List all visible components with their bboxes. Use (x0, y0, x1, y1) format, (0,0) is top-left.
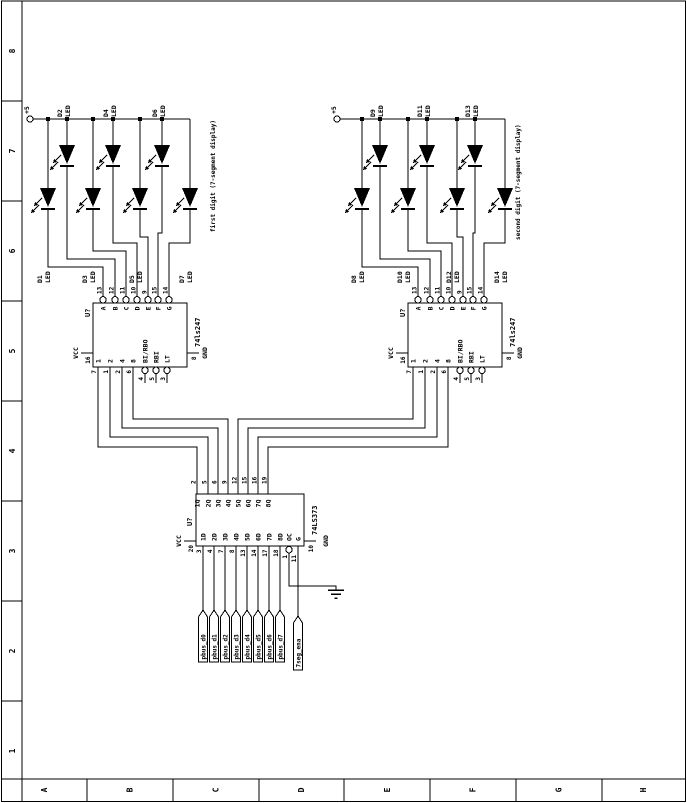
net-flag-label: pbus_d1 (211, 634, 218, 660)
pin-number: 12 (424, 286, 431, 294)
pin-name: 1Q (194, 499, 202, 507)
decoder-device-label: 74ls247 (194, 317, 202, 347)
pin-name: G (295, 537, 303, 541)
junction-dot (65, 117, 69, 121)
vcc-terminal-icon (27, 116, 33, 122)
pin-number: 6 (441, 370, 448, 374)
pin-number: 18 (273, 549, 280, 557)
pin-name: 8 (130, 359, 138, 363)
inverter-bubble (142, 367, 148, 373)
pin-number: 6 (212, 480, 219, 484)
pin-name: 8Q (265, 499, 273, 507)
pin-name: BI/RBO (457, 339, 465, 363)
latch-to-u7-wire (110, 367, 208, 494)
led-type-label: LED (64, 105, 72, 117)
pin-number: 8 (506, 356, 513, 360)
vcc-label: VCC (175, 535, 183, 547)
pin-number: 9 (457, 290, 464, 294)
net-flag-label: pbus_d5 (255, 634, 262, 660)
pin-number: 5 (202, 480, 209, 484)
latch-to-u7-wire (133, 367, 228, 494)
zone-number-label: 7 (8, 148, 17, 153)
led-refdes: D10 (396, 271, 404, 283)
gnd-label: GND (201, 347, 209, 359)
pin-name: F (470, 306, 478, 310)
pin-name: OC (286, 533, 294, 541)
pin-name: 2 (107, 359, 115, 363)
decoder-body-1 (93, 303, 187, 367)
pin-number: 5 (149, 377, 156, 381)
zone-letter-label: F (469, 787, 478, 792)
pin-name: C (438, 306, 446, 310)
inverter-bubble (145, 297, 151, 303)
schematic-page: 87654321ABCDEFGH+5+5D1LEDD2LEDD3LEDD4LED… (0, 0, 687, 803)
latch-to-u9-wire (268, 367, 448, 494)
pin-name: 6D (255, 533, 263, 541)
inverter-bubble (481, 297, 487, 303)
pin-name: LT (164, 355, 172, 363)
pin-name: 4Q (225, 499, 233, 507)
junction-dot (360, 117, 364, 121)
junction-dot (473, 117, 477, 121)
inverter-bubble (457, 367, 463, 373)
led-type-label: LED (377, 105, 385, 117)
zone-number-label: 2 (8, 648, 17, 653)
inverter-bubble (112, 297, 118, 303)
pin-name: C (123, 306, 131, 310)
pin-number: 13 (412, 286, 419, 294)
led-diode-triangle (59, 145, 75, 164)
led-cathode-wire (408, 209, 441, 296)
led-type-label: LED (110, 105, 118, 117)
pin-number: 8 (191, 356, 198, 360)
net-flag-label: pbus_d3 (233, 634, 240, 660)
pin-name: BI/RBO (142, 339, 150, 363)
led-diode-triangle (372, 145, 388, 164)
pin-number: 5 (464, 377, 471, 381)
pin-name: 5Q (235, 499, 243, 507)
display-title-2: second digit (7-segment display) (515, 124, 522, 240)
led-diode-triangle (400, 188, 416, 207)
led-refdes: D14 (493, 271, 501, 283)
pin-name: D (134, 306, 142, 310)
inverter-bubble (123, 297, 129, 303)
pin-number: 11 (291, 555, 298, 563)
led-type-label: LED (404, 271, 412, 283)
led-refdes: D7 (178, 275, 186, 283)
pin-number: 10 (308, 545, 315, 553)
pin-number: 15 (467, 286, 474, 294)
pin-number: 11 (435, 286, 442, 294)
pin-name: 2Q (205, 499, 213, 507)
led-refdes: D5 (128, 275, 136, 283)
led-refdes: D2 (56, 109, 64, 117)
inverter-bubble (286, 547, 292, 553)
led-diode-triangle (40, 188, 56, 207)
inverter-bubble (460, 297, 466, 303)
pin-number: 4 (138, 377, 145, 381)
pin-number: 7 (218, 549, 225, 553)
pin-number: 11 (120, 286, 127, 294)
pin-name: A (100, 306, 108, 310)
pin-name: RBI (153, 351, 161, 363)
latch-refdes: U? (186, 518, 194, 526)
pin-name: 2D (211, 533, 219, 541)
pin-name: E (145, 306, 153, 310)
inverter-bubble (164, 367, 170, 373)
plus5-label: +5 (23, 106, 31, 114)
led-refdes: D9 (369, 109, 377, 117)
pin-number: 14 (478, 286, 485, 294)
net-flag-label: pbus_d6 (266, 634, 273, 660)
pin-number: 9 (222, 480, 229, 484)
vcc-label: VCC (387, 347, 395, 359)
pin-name: 8D (277, 533, 285, 541)
led-diode-triangle (419, 145, 435, 164)
led-refdes: D11 (416, 105, 424, 117)
led-cathode-wire (158, 166, 162, 296)
pin-number: 4 (453, 377, 460, 381)
junction-dot (111, 117, 115, 121)
pin-name: 3D (222, 533, 230, 541)
inverter-bubble (100, 297, 106, 303)
zone-letter-label: C (212, 787, 221, 792)
inverter-bubble (479, 367, 485, 373)
zone-number-label: 4 (8, 448, 17, 453)
led-diode-triangle (182, 188, 198, 207)
decoder-refdes: U? (399, 309, 407, 317)
led-cathode-wire (93, 209, 126, 296)
pin-name: 4 (119, 359, 127, 363)
pin-number: 9 (142, 290, 149, 294)
led-refdes: D1 (36, 275, 44, 283)
pin-name: 1 (95, 359, 103, 363)
zone-letter-label: A (40, 787, 49, 792)
led-refdes: D3 (81, 275, 89, 283)
inverter-bubble (415, 297, 421, 303)
zone-letter-label: D (297, 787, 306, 792)
pin-name: 4D (233, 533, 241, 541)
latch-to-u9-wire (248, 367, 425, 494)
decoder-body-2 (408, 303, 502, 367)
junction-dot (46, 117, 50, 121)
latch-to-u7-wire (98, 367, 197, 494)
latch-to-u7-wire (122, 367, 218, 494)
inverter-bubble (449, 297, 455, 303)
inverter-bubble (134, 297, 140, 303)
gnd-label: GND (516, 347, 524, 359)
border-frame (2, 1, 686, 802)
pin-number: 19 (262, 476, 269, 484)
pin-number: 2 (191, 480, 198, 484)
led-type-label: LED (501, 271, 509, 283)
junction-dot (160, 117, 164, 121)
vcc-terminal-icon (334, 116, 340, 122)
led-refdes: D13 (464, 105, 472, 117)
pin-number: 6 (126, 370, 133, 374)
pin-number: 3 (475, 377, 482, 381)
pin-name: F (155, 306, 163, 310)
inverter-bubble (155, 297, 161, 303)
net-flag-label: pbus_d0 (200, 634, 207, 660)
pin-number: 13 (240, 549, 247, 557)
junction-dot (378, 117, 382, 121)
pin-name: 3Q (215, 499, 223, 507)
led-refdes: D4 (102, 109, 110, 117)
pin-number: 13 (97, 286, 104, 294)
latch-to-u9-wire (238, 367, 413, 494)
decoder-refdes: U? (84, 309, 92, 317)
pin-number: 15 (152, 286, 159, 294)
decoder-device-label: 74ls247 (509, 317, 517, 347)
led-type-label: LED (358, 271, 366, 283)
pin-name: G (166, 306, 174, 310)
pin-name: 4 (434, 359, 442, 363)
pin-number: 7 (406, 370, 413, 374)
junction-dot (91, 117, 95, 121)
latch-device-label: 74LS373 (311, 505, 319, 535)
junction-dot (425, 117, 429, 121)
pin-number: 1 (103, 370, 110, 374)
pin-number: 14 (163, 286, 170, 294)
pin-name: RBI (468, 351, 476, 363)
zone-number-label: 6 (8, 248, 17, 253)
display-title-1: first digit (7-segment display) (210, 120, 217, 232)
zone-letter-label: B (126, 787, 135, 792)
led-type-label: LED (424, 105, 432, 117)
net-flag-label: pbus_d2 (222, 634, 229, 660)
zone-letter-label: E (383, 787, 392, 792)
inverter-bubble (468, 367, 474, 373)
led-diode-triangle (449, 188, 465, 207)
pin-name: LT (479, 355, 487, 363)
pin-number: 3 (196, 549, 203, 553)
zone-letter-label: G (555, 787, 564, 792)
inverter-bubble (166, 297, 172, 303)
pin-name: A (415, 306, 423, 310)
pin-number: 10 (446, 286, 453, 294)
inverter-bubble (470, 297, 476, 303)
led-diode-triangle (467, 145, 483, 164)
led-diode-triangle (105, 145, 121, 164)
pin-name: 6Q (245, 499, 253, 507)
junction-dot (455, 117, 459, 121)
pin-name: 1 (410, 359, 418, 363)
pin-number: 2 (430, 370, 437, 374)
zone-letter-label: H (639, 787, 648, 792)
led-refdes: D12 (445, 271, 453, 283)
pin-number: 3 (160, 377, 167, 381)
vcc-label: VCC (72, 347, 80, 359)
latch-to-u9-wire (258, 367, 437, 494)
led-type-label: LED (186, 271, 194, 283)
led-type-label: LED (472, 105, 480, 117)
plus5-label: +5 (330, 106, 338, 114)
led-type-label: LED (136, 271, 144, 283)
pin-number: 8 (229, 549, 236, 553)
pin-number: 1 (418, 370, 425, 374)
inverter-bubble (427, 297, 433, 303)
inverter-bubble (153, 367, 159, 373)
led-refdes: D8 (350, 275, 358, 283)
led-diode-triangle (85, 188, 101, 207)
net-flag-label: pbus_d7 (277, 634, 284, 660)
gnd-label: GND (322, 535, 330, 547)
led-refdes: D6 (151, 109, 159, 117)
led-diode-triangle (154, 145, 170, 164)
pin-name: D (449, 306, 457, 310)
schematic-canvas: 87654321ABCDEFGH+5+5D1LEDD2LEDD3LEDD4LED… (0, 0, 687, 803)
junction-dot (138, 117, 142, 121)
pin-number: 1 (282, 555, 289, 559)
pin-name: E (460, 306, 468, 310)
pin-number: 16 (252, 476, 259, 484)
pin-name: 7D (266, 533, 274, 541)
led-diode-triangle (497, 188, 513, 207)
pin-number: 2 (115, 370, 122, 374)
led-type-label: LED (453, 271, 461, 283)
pin-number: 16 (400, 356, 407, 364)
led-type-label: LED (159, 105, 167, 117)
led-diode-triangle (354, 188, 370, 207)
zone-number-label: 8 (8, 48, 17, 53)
pin-number: 12 (109, 286, 116, 294)
zone-number-label: 3 (8, 548, 17, 553)
pin-number: 20 (188, 545, 195, 553)
pin-number: 17 (262, 549, 269, 557)
junction-dot (406, 117, 410, 121)
pin-number: 12 (232, 476, 239, 484)
pin-number: 7 (91, 370, 98, 374)
inverter-bubble (438, 297, 444, 303)
pin-name: 7Q (255, 499, 263, 507)
led-diode-triangle (132, 188, 148, 207)
pin-number: 14 (251, 549, 258, 557)
led-cathode-wire (473, 166, 475, 296)
zone-number-label: 5 (8, 348, 17, 353)
pin-number: 10 (131, 286, 138, 294)
zone-number-label: 1 (8, 748, 17, 753)
pin-name: 8 (445, 359, 453, 363)
pin-name: G (481, 306, 489, 310)
pin-number: 16 (85, 356, 92, 364)
led-type-label: LED (89, 271, 97, 283)
pin-name: 2 (422, 359, 430, 363)
pin-number: 15 (242, 476, 249, 484)
pin-name: B (427, 306, 435, 310)
pin-number: 4 (207, 549, 214, 553)
net-flag-label: 7seg_ena (295, 638, 302, 667)
pin-name: 1D (200, 533, 208, 541)
led-type-label: LED (44, 271, 52, 283)
pin-name: 5D (244, 533, 252, 541)
pin-name: B (112, 306, 120, 310)
net-flag-label: pbus_d4 (244, 634, 251, 660)
